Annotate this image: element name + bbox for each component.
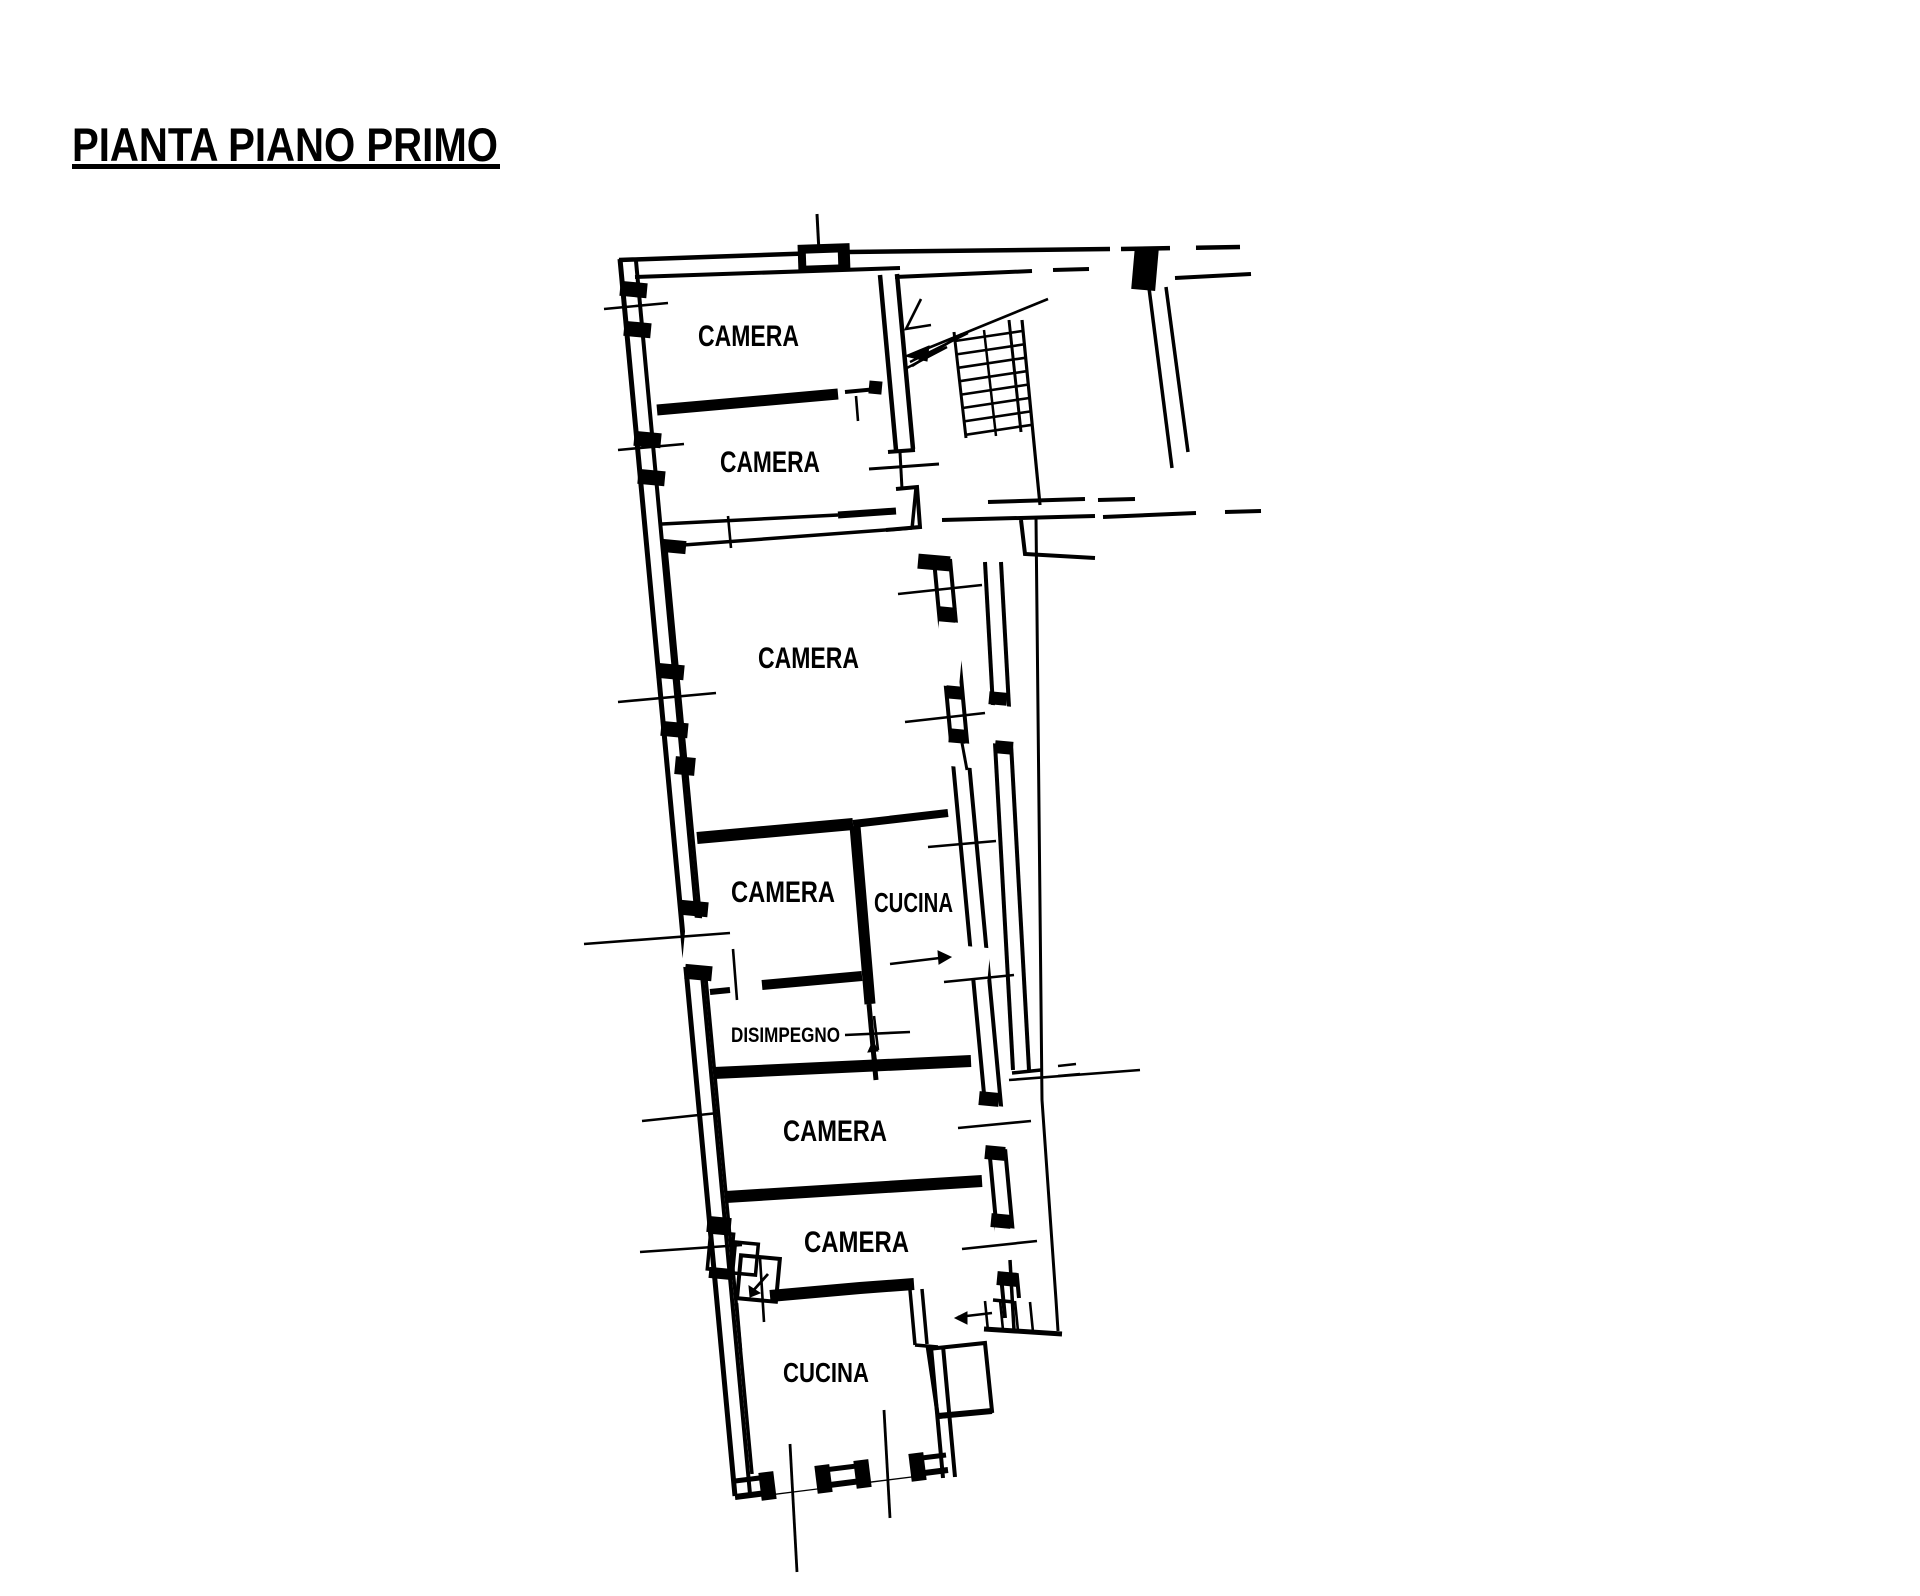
svg-text:PIANTA PIANO PRIMO: PIANTA PIANO PRIMO [72,118,498,171]
svg-text:CAMERA: CAMERA [720,446,820,479]
svg-text:CAMERA: CAMERA [731,876,835,909]
svg-text:CAMERA: CAMERA [804,1226,909,1259]
svg-text:CAMERA: CAMERA [783,1115,887,1148]
svg-text:DISIMPEGNO: DISIMPEGNO [731,1024,840,1047]
svg-text:CAMERA: CAMERA [758,642,859,675]
svg-text:CAMERA: CAMERA [698,320,799,353]
svg-text:CUCINA: CUCINA [874,887,953,918]
svg-text:CUCINA: CUCINA [783,1357,869,1388]
